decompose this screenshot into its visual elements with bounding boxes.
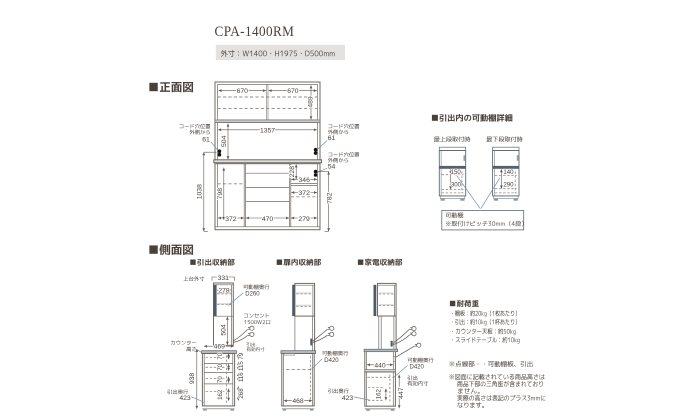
svg-text:670: 670 [287, 88, 299, 95]
svg-text:140: 140 [503, 169, 514, 176]
svg-text:469: 469 [214, 344, 226, 351]
svg-text:70: 70 [217, 352, 224, 359]
svg-text:D420: D420 [324, 358, 339, 364]
svg-text:504: 504 [221, 135, 228, 147]
svg-text:70: 70 [217, 376, 224, 383]
svg-text:79: 79 [238, 352, 245, 359]
svg-text:372: 372 [225, 216, 237, 223]
svg-text:489: 489 [307, 96, 314, 108]
svg-text:D260: D260 [245, 292, 260, 298]
svg-text:1038: 1038 [196, 184, 203, 199]
svg-text:300: 300 [451, 181, 462, 188]
svg-text:70: 70 [217, 363, 224, 370]
svg-text:61: 61 [328, 135, 336, 142]
svg-text:162: 162 [375, 389, 382, 400]
svg-text:331: 331 [218, 275, 230, 282]
svg-text:268: 268 [238, 388, 245, 399]
svg-text:61: 61 [202, 136, 210, 143]
svg-text:670: 670 [237, 88, 249, 95]
svg-text:115: 115 [238, 361, 245, 371]
svg-text:447: 447 [398, 387, 405, 399]
svg-text:470: 470 [262, 216, 274, 223]
svg-text:423: 423 [179, 395, 191, 402]
svg-text:228: 228 [289, 166, 296, 178]
svg-text:782: 782 [327, 192, 334, 204]
svg-text:372: 372 [299, 190, 311, 197]
svg-text:150: 150 [451, 169, 462, 176]
svg-text:D420: D420 [410, 365, 425, 371]
svg-text:423: 423 [342, 395, 354, 402]
svg-text:468: 468 [292, 398, 304, 405]
svg-text:346: 346 [299, 177, 311, 184]
svg-text:504: 504 [220, 324, 227, 336]
svg-text:116: 116 [238, 372, 245, 382]
svg-text:290: 290 [503, 182, 514, 189]
svg-text:279: 279 [298, 216, 310, 223]
svg-text:938: 938 [189, 373, 196, 385]
svg-text:440: 440 [374, 362, 386, 369]
svg-text:CPA-1400RM: CPA-1400RM [215, 23, 295, 40]
svg-text:54: 54 [328, 163, 336, 170]
svg-text:162: 162 [217, 389, 224, 400]
svg-text:1357: 1357 [260, 127, 275, 134]
svg-text:798: 798 [217, 188, 224, 200]
